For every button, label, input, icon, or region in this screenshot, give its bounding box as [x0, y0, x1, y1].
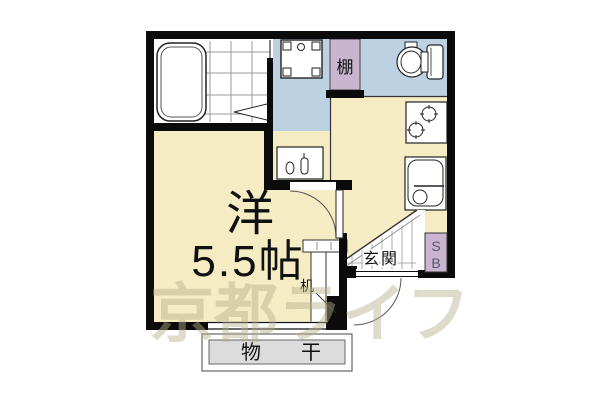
floorplan-drawing: 洋 5.5帖 棚 玄関 S B 机 物干 京都ライフ — [0, 0, 600, 400]
bathtub — [157, 43, 206, 121]
stove — [406, 102, 447, 143]
shelf-label: 棚 — [337, 58, 354, 77]
floorplan-canvas: 洋 5.5帖 棚 玄関 S B 机 物干 京都ライフ — [0, 0, 600, 400]
kitchen-sink — [405, 157, 446, 210]
entrance-label: 玄関 — [363, 250, 399, 268]
shoebox-label-b: B — [431, 255, 440, 271]
watermark-text: 京都ライフ — [150, 278, 470, 350]
room-name-label: 洋 — [226, 188, 274, 241]
washing-machine — [281, 40, 322, 78]
shoebox-label-s: S — [431, 238, 440, 254]
washbasin — [277, 147, 323, 179]
